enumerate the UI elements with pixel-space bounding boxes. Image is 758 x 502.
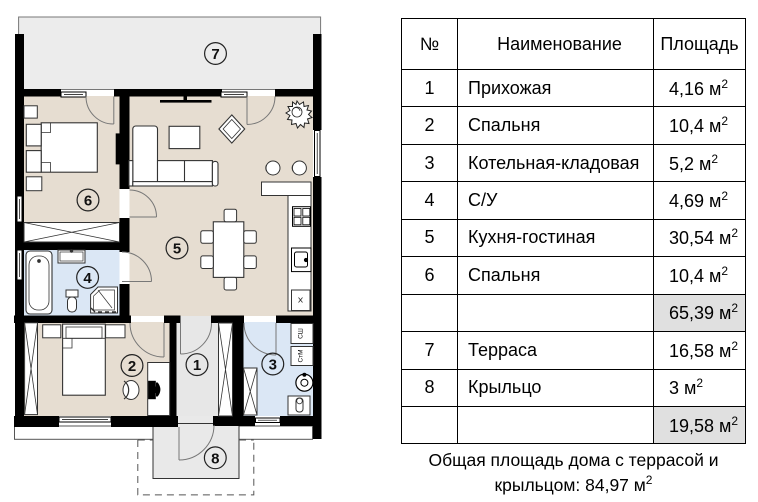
svg-text:СтМ: СтМ bbox=[298, 349, 305, 362]
svg-text:7: 7 bbox=[211, 46, 219, 63]
svg-text:1: 1 bbox=[193, 357, 201, 374]
svg-text:6: 6 bbox=[84, 193, 92, 210]
svg-text:СШ: СШ bbox=[298, 328, 305, 339]
svg-text:8: 8 bbox=[211, 450, 219, 467]
svg-text:4: 4 bbox=[83, 270, 92, 287]
svg-text:2: 2 bbox=[128, 358, 136, 375]
svg-text:5: 5 bbox=[173, 241, 181, 258]
svg-text:3: 3 bbox=[269, 357, 277, 374]
